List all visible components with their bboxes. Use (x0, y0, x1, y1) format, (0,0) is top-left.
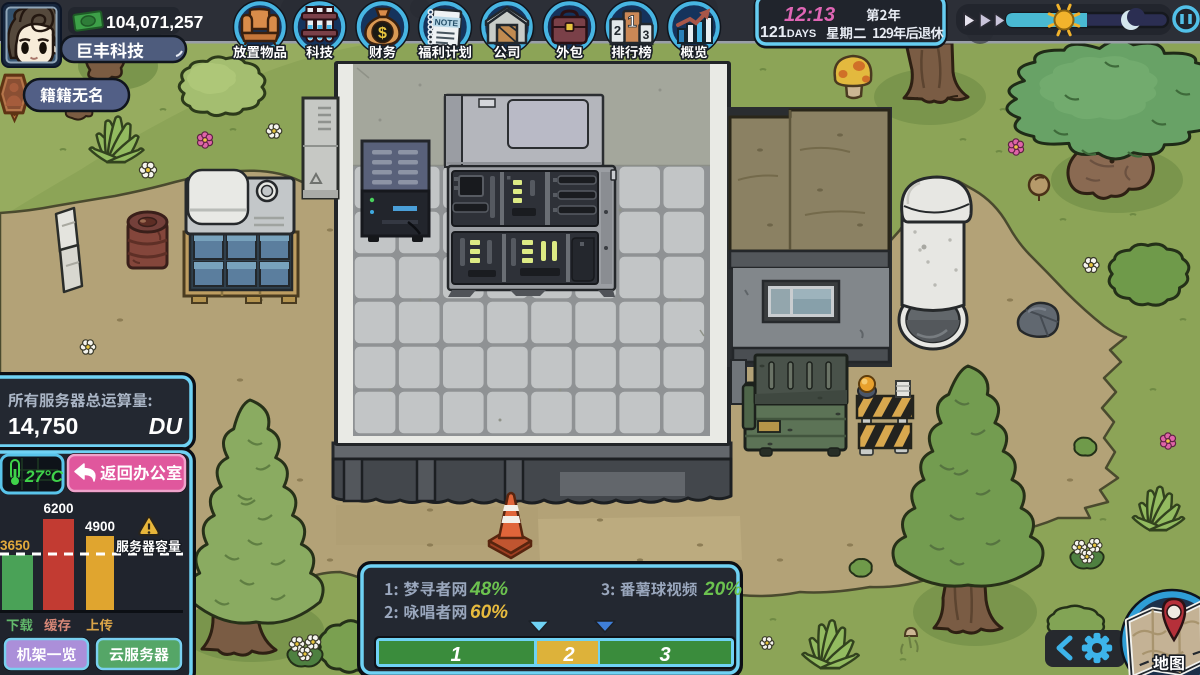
svg-text:1: 1 (627, 12, 636, 31)
svg-text:1: 1 (450, 644, 461, 666)
svg-text:3650: 3650 (0, 538, 30, 553)
svg-text:DU: DU (149, 413, 184, 439)
svg-text:12:13: 12:13 (784, 4, 835, 26)
svg-text:2: 2 (562, 644, 574, 666)
svg-text:$: $ (378, 25, 387, 42)
svg-text:NOTE: NOTE (434, 17, 459, 29)
svg-text:27°C: 27°C (24, 467, 64, 486)
svg-text:4900: 4900 (85, 519, 115, 534)
svg-text:104,071,257: 104,071,257 (106, 12, 203, 32)
svg-text:60%: 60% (470, 602, 508, 623)
svg-text:48%: 48% (469, 579, 508, 600)
svg-text:2: 2 (614, 23, 621, 38)
svg-text:3: 3 (643, 28, 650, 42)
svg-text:20%: 20% (703, 579, 742, 600)
svg-text:6200: 6200 (43, 501, 73, 516)
svg-text:3: 3 (659, 644, 670, 666)
svg-text:14,750: 14,750 (8, 413, 78, 439)
